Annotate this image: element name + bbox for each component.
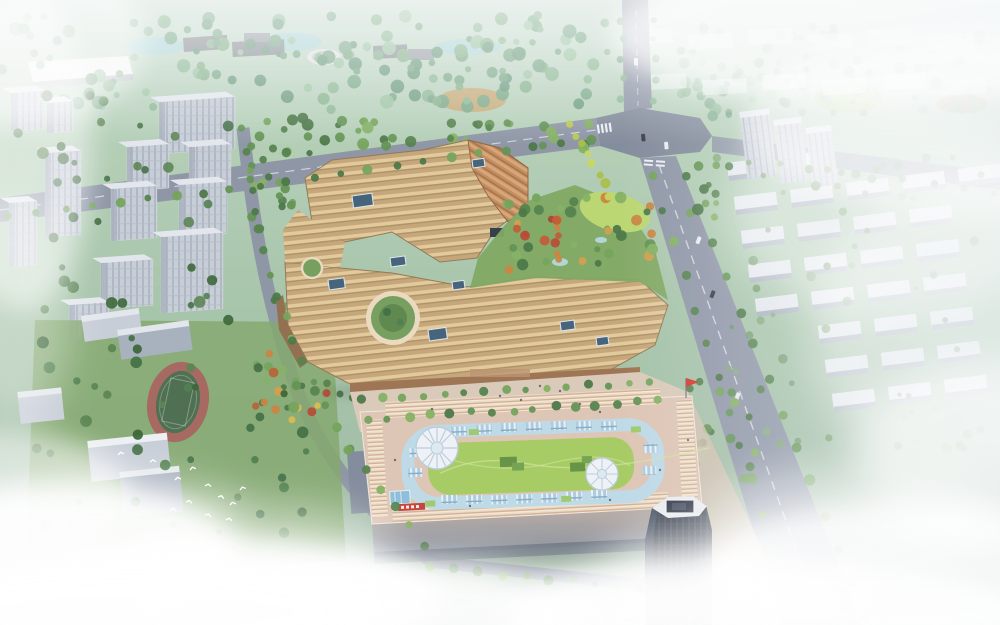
global-veil [0, 0, 1000, 625]
scene-canvas [0, 0, 1000, 625]
fog-clouds [0, 0, 1000, 625]
aerial-rendering [0, 0, 1000, 625]
